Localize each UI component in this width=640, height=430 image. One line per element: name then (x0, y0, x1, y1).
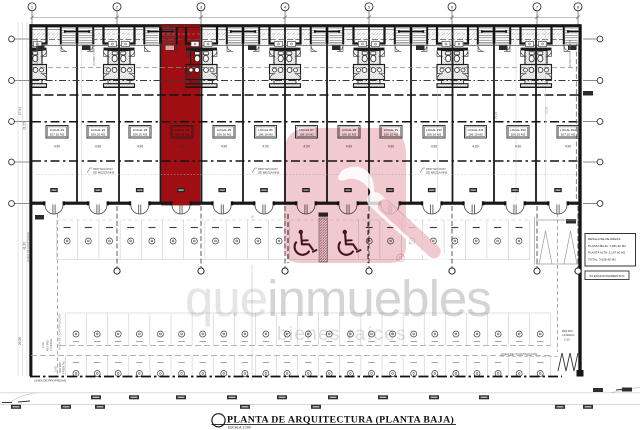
svg-text:DE MEZZANINE: DE MEZZANINE (93, 171, 115, 175)
svg-text:4.90: 4.90 (431, 145, 437, 149)
svg-text:LOCAL #4: LOCAL #4 (175, 128, 190, 132)
svg-text:21.24: 21.24 (494, 112, 498, 119)
svg-text:17.94: 17.94 (18, 107, 22, 115)
svg-text:20.26: 20.26 (18, 337, 22, 345)
svg-text:PLANTA ALTA: 1,147.00 M2: PLANTA ALTA: 1,147.00 M2 (588, 251, 626, 255)
svg-text:LOCAL #13: LOCAL #13 (560, 128, 576, 132)
svg-text:LOCAL #12: LOCAL #12 (510, 128, 526, 132)
svg-text:4.90: 4.90 (565, 145, 571, 149)
svg-text:ESCALA 1:100: ESCALA 1:100 (228, 425, 251, 429)
svg-text:DE MEZZANINE: DE MEZZANINE (258, 171, 280, 175)
svg-text:TOTAL: 3,028.40 M2: TOTAL: 3,028.40 M2 (588, 258, 616, 262)
svg-text:PLANTA BAJA: 1,381.40 M2: PLANTA BAJA: 1,381.40 M2 (588, 244, 626, 248)
svg-text:4.90: 4.90 (515, 145, 521, 149)
svg-text:PLANTA DE ARQUITECTURA (PLANTA: PLANTA DE ARQUITECTURA (PLANTA BAJA) (227, 414, 454, 425)
svg-text:2.50: 2.50 (564, 338, 570, 342)
svg-text:4.90: 4.90 (472, 145, 478, 149)
svg-text:107.10 M2: 107.10 M2 (561, 132, 576, 136)
svg-text:106.10 M2: 106.10 M2 (258, 132, 273, 136)
svg-text:queinmuebles: queinmuebles (185, 270, 491, 327)
svg-text:106.10 M2: 106.10 M2 (468, 132, 483, 136)
svg-text:106.10 M2: 106.10 M2 (217, 132, 232, 136)
svg-text:RETIRO POSTERIOR: RETIRO POSTERIOR (35, 38, 39, 66)
svg-text:21.24: 21.24 (545, 107, 549, 114)
svg-text:RETIRO POSTERIOR: RETIRO POSTERIOR (568, 40, 572, 68)
svg-text:R: R (398, 256, 403, 262)
svg-text:LOCAL #11: LOCAL #11 (468, 128, 484, 132)
svg-text:LATERAL: LATERAL (562, 333, 575, 337)
svg-text:LOCAL #6: LOCAL #6 (258, 128, 273, 132)
svg-text:4.90: 4.90 (179, 145, 185, 149)
svg-text:LOCAL #1: LOCAL #1 (50, 128, 65, 132)
svg-text:ULTIMO POSTE EXISTENTE: ULTIMO POSTE EXISTENTE (92, 29, 96, 66)
svg-text:LOCAL #3: LOCAL #3 (133, 128, 148, 132)
svg-text:LINEA DE PROPIEDAD: LINEA DE PROPIEDAD (26, 232, 30, 262)
svg-text:FRONTAL: FRONTAL (62, 360, 66, 374)
svg-text:106.10 M2: 106.10 M2 (133, 132, 148, 136)
svg-text:63 ESTACIONAMIENTOS: 63 ESTACIONAMIENTOS (590, 274, 625, 278)
svg-text:LOCAL #5: LOCAL #5 (217, 128, 232, 132)
svg-text:4.90: 4.90 (137, 145, 143, 149)
svg-text:4.90: 4.90 (54, 145, 60, 149)
svg-text:DESGLOSE DE AREAS: DESGLOSE DE AREAS (588, 237, 620, 241)
svg-text:LOCAL #2: LOCAL #2 (91, 128, 106, 132)
svg-text:106.10 M2: 106.10 M2 (427, 132, 442, 136)
svg-text:DE MEZZANINE: DE MEZZANINE (426, 171, 448, 175)
svg-text:4.90: 4.90 (262, 145, 268, 149)
svg-text:bienes raíces: bienes raíces (277, 324, 406, 345)
svg-text:21.25: 21.25 (23, 122, 27, 130)
svg-text:2.50: 2.50 (54, 366, 58, 372)
svg-text:LINEA DE CONSTRUCCION: LINEA DE CONSTRUCCION (58, 314, 62, 350)
svg-text:107.10 M2: 107.10 M2 (50, 132, 65, 136)
svg-text:106.10 M2: 106.10 M2 (175, 132, 190, 136)
svg-text:LINEA DE CONSTRUCCION: LINEA DE CONSTRUCCION (501, 352, 537, 356)
svg-text:LOCAL #10: LOCAL #10 (426, 128, 442, 132)
svg-text:4.90: 4.90 (95, 145, 101, 149)
svg-text:2.50: 2.50 (41, 342, 45, 348)
svg-text:106.10 M2: 106.10 M2 (91, 132, 106, 136)
svg-text:LATERAL: LATERAL (49, 338, 53, 351)
svg-text:LINEA DE PROPIEDAD: LINEA DE PROPIEDAD (34, 379, 67, 383)
svg-text:106.10 M2: 106.10 M2 (511, 132, 526, 136)
svg-text:4.90: 4.90 (221, 145, 227, 149)
